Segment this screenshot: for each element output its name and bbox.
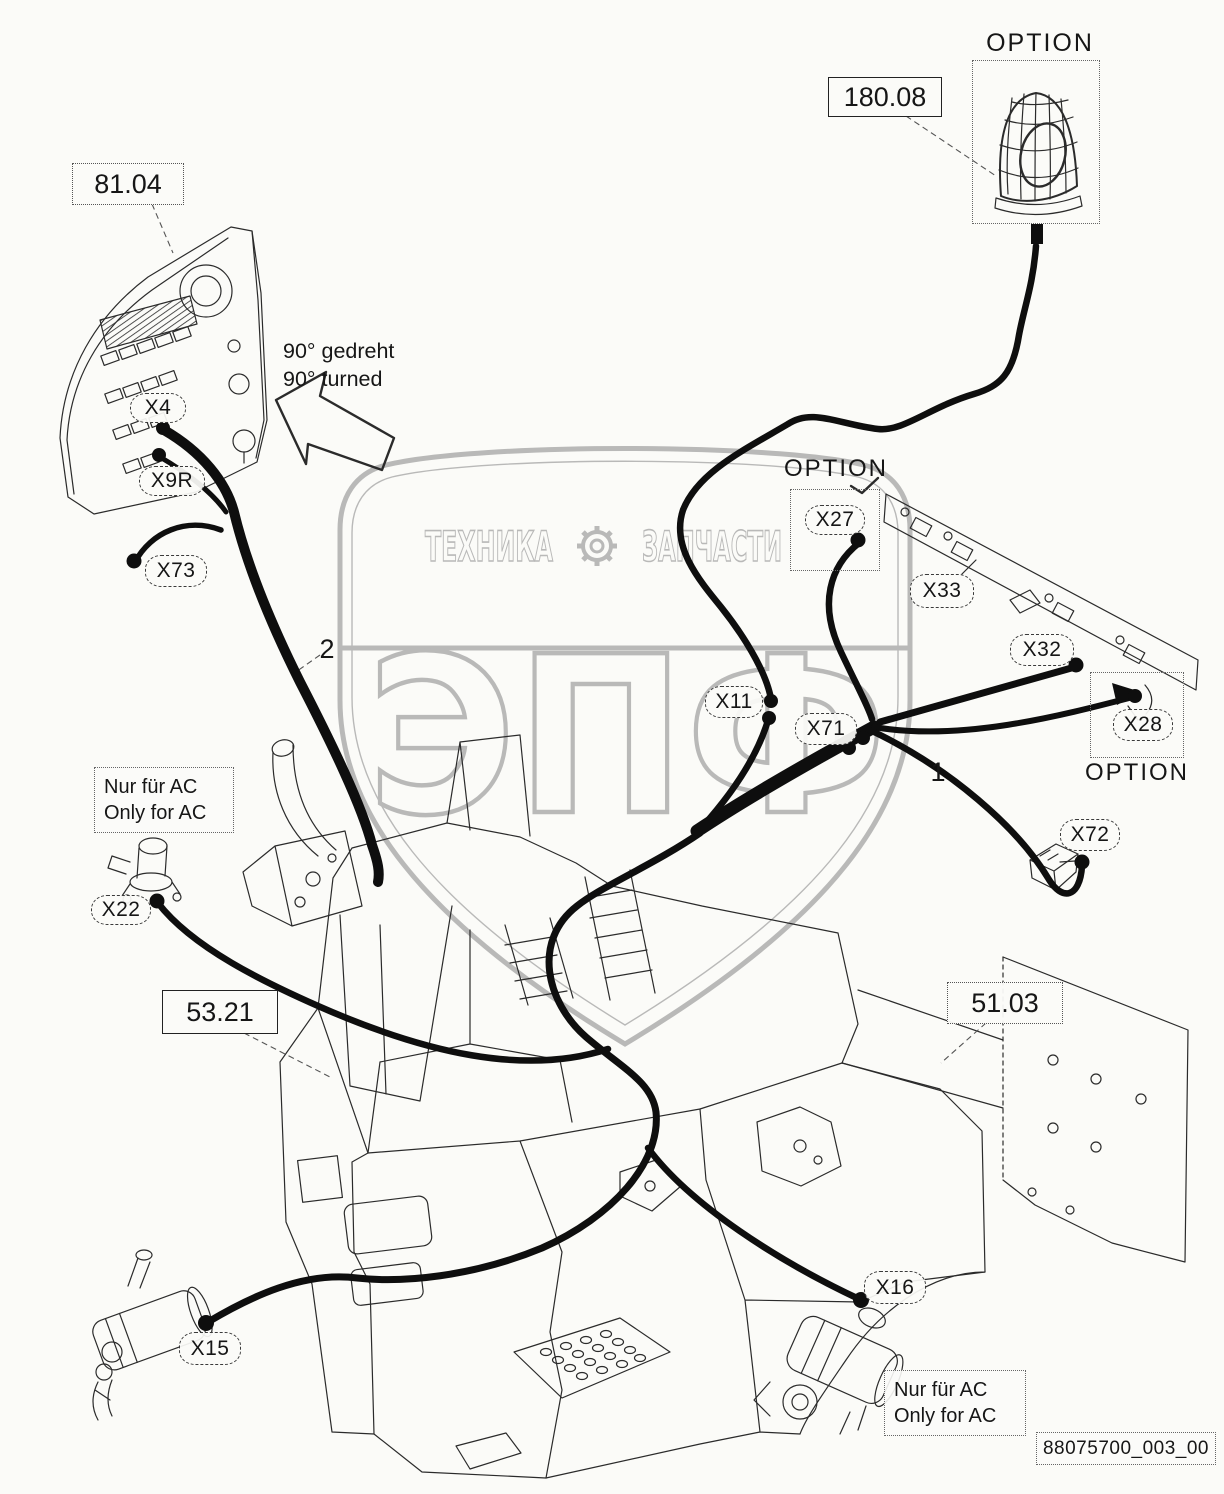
- doc-number-box: 88075700_003_00: [1036, 1432, 1216, 1465]
- watermark-text-right: ЗАПЧАСТИ: [642, 522, 782, 571]
- ac-note-left-line1: Nur für AC: [104, 774, 197, 800]
- connector-label-x11: X11: [705, 686, 763, 718]
- cab-harness-down: [208, 833, 700, 1322]
- x33-text: X33: [923, 579, 962, 603]
- ref-180-08-text: 180.08: [844, 82, 927, 113]
- x28-text: X28: [1124, 713, 1163, 737]
- ac-note-right-line1: Nur für AC: [894, 1377, 987, 1403]
- ac-note-left: Nur für AC Only for AC: [94, 767, 234, 833]
- connector-label-x9r: X9R: [139, 466, 205, 496]
- connector-label-x28: X28: [1113, 709, 1173, 741]
- diagram-line-art: ТЕХНИКА ЗАПЧАСТИ ЭПФ: [0, 0, 1224, 1494]
- x4-text: X4: [145, 396, 172, 420]
- watermark-text-left: ТЕХНИКА: [425, 522, 553, 571]
- ac-sensor-x22: [108, 838, 181, 903]
- x15-text: X15: [191, 1337, 230, 1361]
- ref-box-81-04: 81.04: [72, 163, 184, 205]
- connector-label-x73: X73: [145, 555, 207, 587]
- x11-text: X11: [715, 690, 752, 714]
- connector-label-x32: X32: [1010, 634, 1074, 666]
- connector-label-x71: X71: [795, 713, 857, 745]
- rotated-note: 90° gedreht 90° turned: [283, 338, 413, 394]
- ac-note-right: Nur für AC Only for AC: [884, 1370, 1026, 1436]
- ac-note-right-line2: Only for AC: [894, 1403, 996, 1429]
- cable-x22: [158, 903, 608, 1061]
- connector-label-x22: X22: [91, 895, 151, 925]
- option-label-rear-lamp: OPTION: [1086, 758, 1188, 788]
- x72-text: X72: [1071, 823, 1110, 847]
- x9r-text: X9R: [151, 469, 193, 493]
- x27-text: X27: [816, 508, 855, 532]
- rotated-note-line1: 90° gedreht: [283, 338, 394, 366]
- rotated-note-line2: 90° turned: [283, 366, 382, 394]
- ref-box-180-08: 180.08: [828, 77, 942, 117]
- leader-lines: [152, 116, 996, 1077]
- callout-harness-1: 1: [926, 757, 950, 787]
- x32-text: X32: [1023, 638, 1062, 662]
- doc-number-text: 88075700_003_00: [1043, 1438, 1209, 1460]
- ref-box-53-21: 53.21: [162, 990, 278, 1034]
- cable-branch-x16: [648, 1148, 859, 1299]
- callout-harness-2: 2: [315, 634, 339, 664]
- beacon-option-box: [972, 60, 1100, 224]
- ref-81-04-text: 81.04: [94, 169, 162, 200]
- connector-label-x16: X16: [864, 1271, 926, 1304]
- ref-box-51-03: 51.03: [947, 982, 1063, 1024]
- connector-label-x4: X4: [130, 393, 186, 423]
- connector-label-x27: X27: [805, 505, 865, 535]
- ref-51-03-text: 51.03: [971, 988, 1039, 1019]
- watermark-gear-icon: [577, 526, 617, 566]
- x16-text: X16: [876, 1276, 915, 1300]
- x22-text: X22: [102, 898, 141, 922]
- connector-label-x33: X33: [910, 574, 974, 608]
- option-label-beacon: OPTION: [985, 28, 1095, 58]
- connector-label-x72: X72: [1060, 819, 1120, 851]
- x73-text: X73: [157, 559, 196, 583]
- parts-diagram-page: ТЕХНИКА ЗАПЧАСТИ ЭПФ: [0, 0, 1224, 1494]
- ref-53-21-text: 53.21: [186, 997, 254, 1028]
- connector-label-x15: X15: [179, 1332, 241, 1365]
- ac-note-left-line2: Only for AC: [104, 800, 206, 826]
- x71-text: X71: [807, 717, 846, 741]
- option-label-lights-rail: OPTION: [786, 454, 886, 484]
- connector-dots: [127, 421, 1143, 1331]
